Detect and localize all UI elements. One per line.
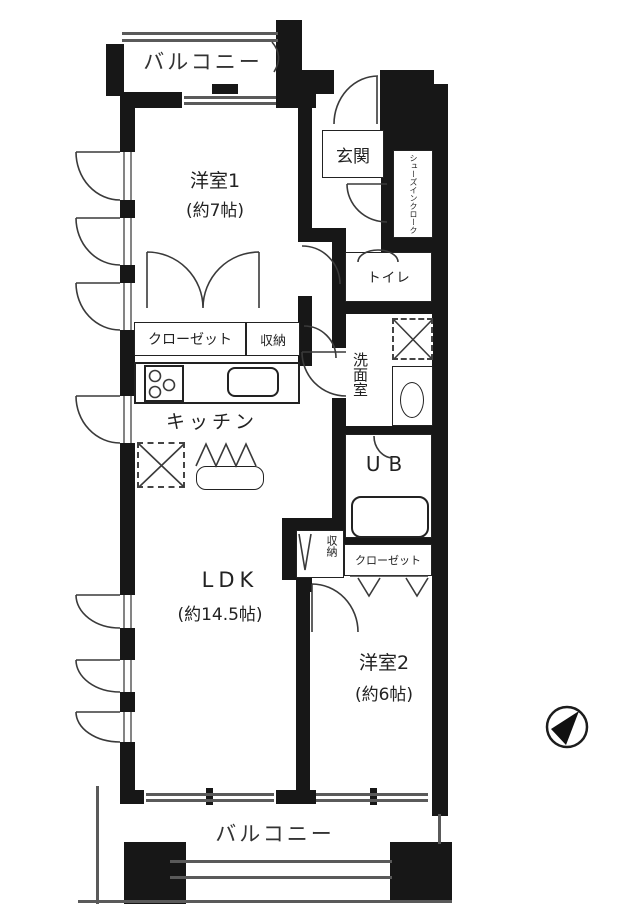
window-line [184, 102, 276, 105]
stove-icon [144, 365, 184, 402]
kitchen-label: キッチン [156, 407, 268, 434]
pantry-counter [196, 466, 264, 490]
door-arc-entrance [334, 76, 378, 124]
window-arc [76, 660, 120, 692]
wall-edge [438, 814, 441, 844]
wall [332, 398, 346, 538]
window-arc [76, 152, 120, 200]
wall [312, 228, 346, 242]
wall [120, 330, 135, 396]
room1-name: 洋室1 [150, 166, 280, 193]
washing-machine-space-icon [392, 318, 433, 360]
wall [120, 443, 135, 595]
door-arc-room2 [312, 584, 358, 632]
balcony-railing [122, 32, 278, 35]
ldk-size: (約14.5帖) [138, 600, 302, 625]
balcony-column [390, 842, 452, 902]
wall [120, 628, 135, 660]
room2-name: 洋室2 [328, 648, 440, 675]
wall [298, 92, 312, 242]
window-arc [76, 712, 120, 742]
toilet-label: トイレ [348, 266, 430, 286]
balcony-railing [122, 39, 278, 42]
window-arc [76, 218, 120, 265]
balcony-railing [170, 860, 392, 863]
shoes-in-closet-box: シューズインクローク [393, 150, 433, 238]
closet-main-box: クローゼット [134, 322, 246, 356]
balcony-railing [170, 876, 392, 879]
room2-size: (約6帖) [328, 680, 440, 705]
hanger-rail-icon [350, 576, 428, 596]
unit-bath-label: UB [350, 452, 426, 476]
window-line [146, 799, 274, 802]
wall [345, 302, 433, 314]
kitchen-sink-icon [227, 367, 279, 397]
entrance-label: 玄関 [336, 142, 370, 167]
wall [296, 518, 344, 530]
entrance-label-box: 玄関 [322, 130, 384, 178]
wall [432, 84, 448, 816]
wall [296, 578, 312, 592]
window-arc [76, 595, 120, 628]
folding-door-icon [196, 444, 256, 466]
closet-room2-label: クローゼット [355, 552, 421, 568]
floorplan-canvas: 玄関 シューズインクローク クローゼット 収納 収納 クローゼット バルコニー … [0, 0, 640, 919]
wall [393, 238, 433, 252]
balcony-bottom-label: バルコニー [192, 818, 358, 848]
wall [276, 790, 316, 804]
refrigerator-space-icon [137, 442, 185, 488]
door-arc-closet1 [147, 252, 259, 308]
washroom-label: 洗面室 [346, 318, 374, 430]
storage-mid-label: 収納 [323, 535, 339, 557]
wall [120, 200, 135, 218]
wall [120, 692, 135, 712]
wall [120, 265, 135, 283]
wall [332, 242, 346, 348]
storage-hall-box: 収納 [246, 322, 300, 356]
window-line [316, 793, 428, 796]
storage-hall-label: 収納 [260, 330, 286, 349]
wall [290, 70, 334, 94]
wall [120, 790, 144, 804]
floorplan-linework [0, 0, 640, 919]
washbasin-bowl [400, 382, 424, 418]
wall [298, 296, 312, 366]
window-arc [76, 396, 120, 443]
balcony-edge [78, 900, 452, 903]
wall [120, 92, 135, 152]
window-line [184, 96, 276, 99]
wall [106, 44, 124, 96]
balcony-top-label: バルコニー [128, 46, 278, 76]
window-mullion [370, 788, 377, 805]
ldk-name: LDK [170, 568, 290, 592]
window-line [316, 799, 428, 802]
balcony-partition-block [212, 84, 238, 94]
closet-main-label: クローゼット [148, 329, 232, 349]
wall [380, 70, 434, 154]
window-arc [76, 283, 120, 330]
storage-mid-box: 収納 [296, 530, 344, 578]
shoes-in-closet-label: シューズインクローク [409, 154, 417, 234]
room1-size: (約7帖) [150, 196, 280, 221]
balcony-column [124, 842, 186, 904]
closet-room2-box: クローゼット [344, 544, 432, 576]
balcony-edge [96, 786, 99, 904]
bathtub-icon [351, 496, 429, 538]
window-line [146, 793, 274, 796]
window-mullion [206, 788, 213, 805]
north-compass-icon [547, 707, 587, 747]
